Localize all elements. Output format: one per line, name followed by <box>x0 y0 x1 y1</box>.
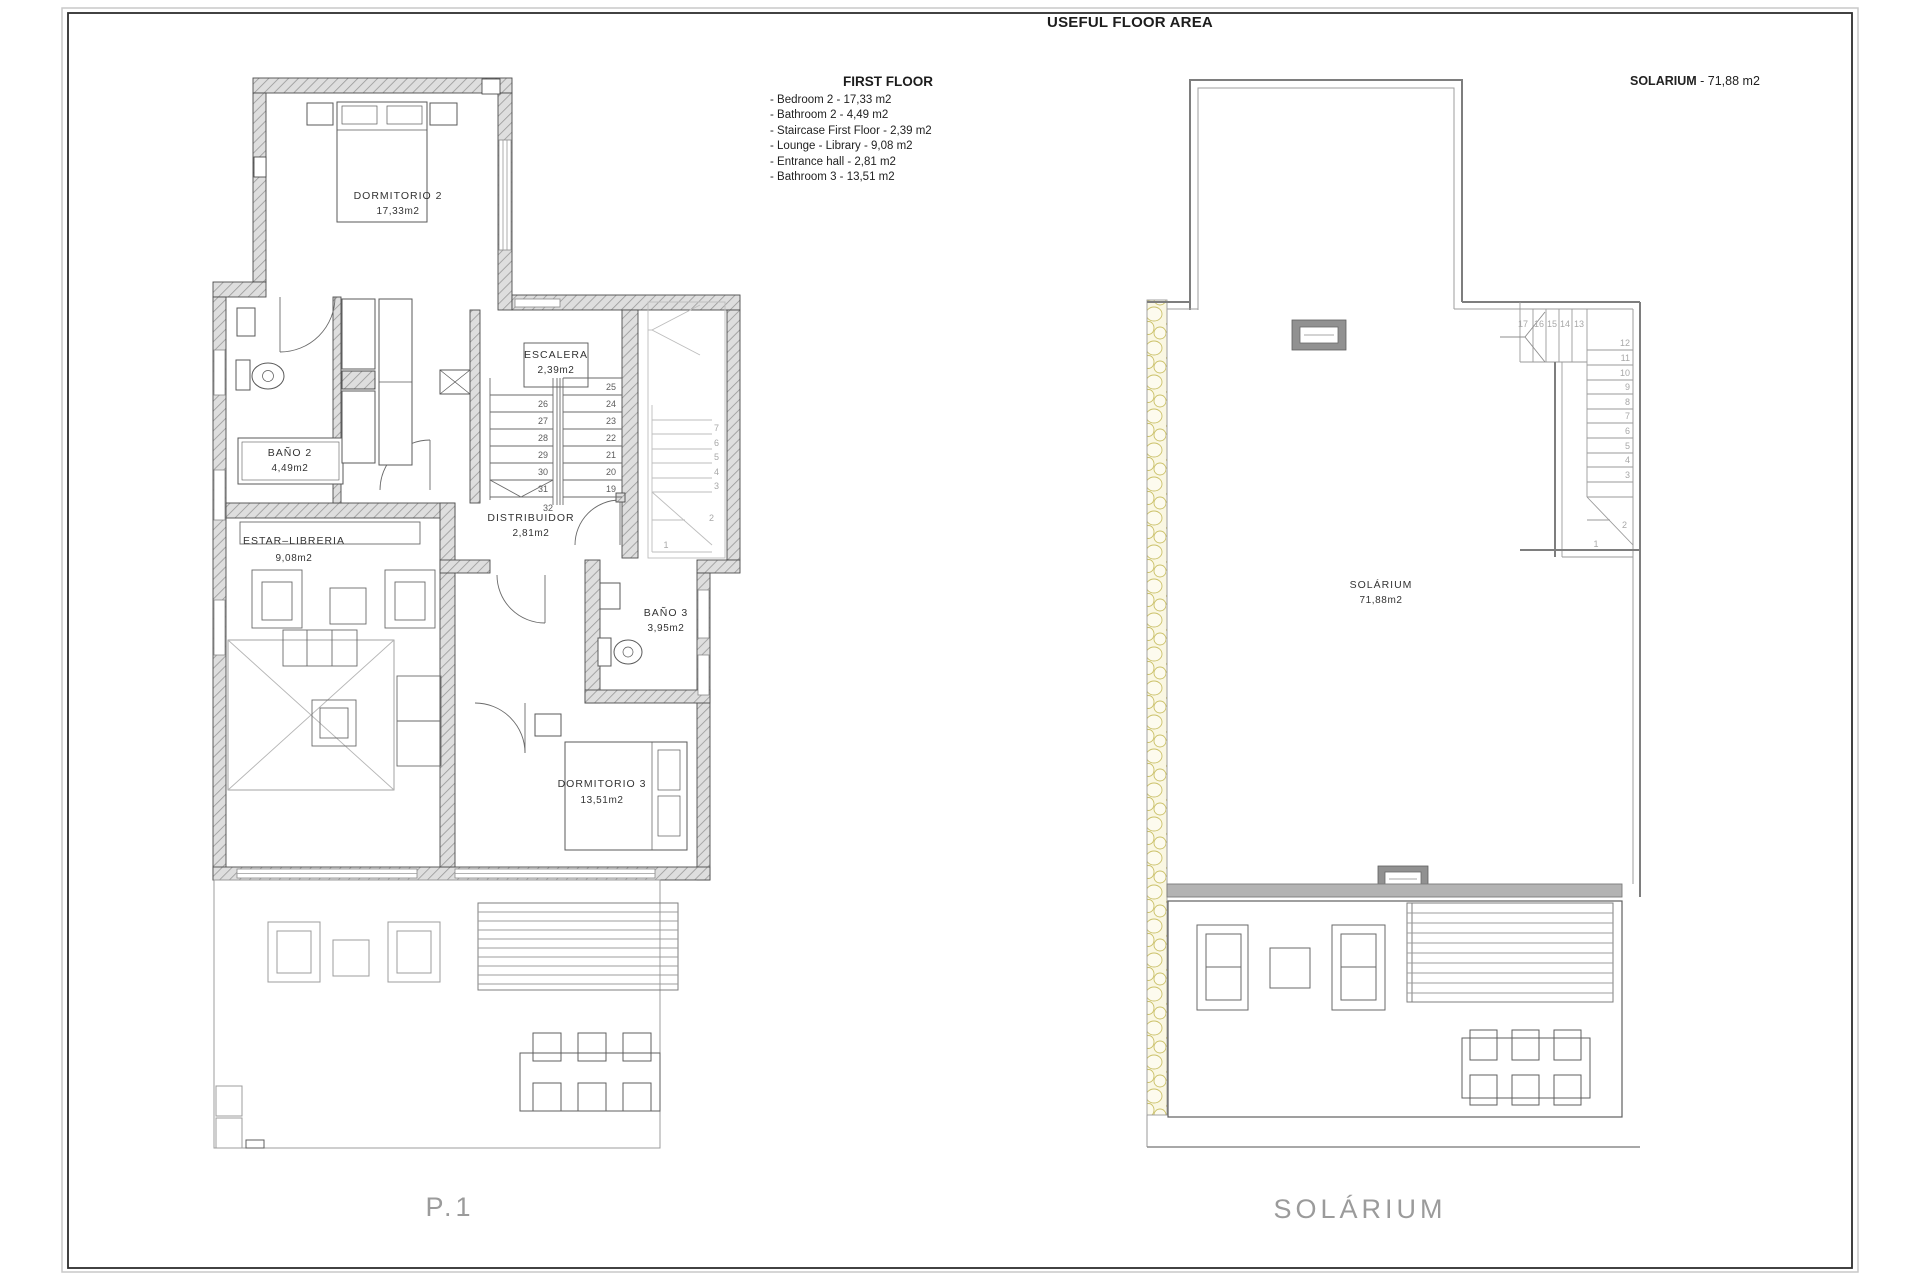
room-area-dormitorio3: 13,51m2 <box>580 795 623 806</box>
roof-vents <box>1292 320 1428 894</box>
room-area-estar: 9,08m2 <box>276 553 313 564</box>
stair-number: 26 <box>538 399 548 409</box>
room-label-bano3: BAÑO 3 <box>644 606 689 619</box>
caption-first-floor: P.1 <box>350 1192 550 1223</box>
stair-number: 29 <box>538 450 548 460</box>
stair-number: 11 <box>1621 353 1630 363</box>
stair-number: 19 <box>606 484 616 494</box>
terrace-first-floor <box>214 880 678 1148</box>
stair-number: 3 <box>1625 470 1630 480</box>
stair-number: 28 <box>538 433 548 443</box>
stair-number: 15 <box>1547 319 1557 329</box>
room-area-distribuidor: 2,81m2 <box>513 528 550 539</box>
solarium-stair-numbers: 17 16 15 14 13 12 11 10 9 8 7 6 5 4 3 2 … <box>1518 319 1630 549</box>
stair-number: 10 <box>1620 368 1630 378</box>
stair-number: 24 <box>606 399 616 409</box>
bedroom2-furniture <box>307 102 457 222</box>
room-label-estar: ESTAR–LIBRERIA <box>243 535 345 547</box>
stair-number: 20 <box>606 467 616 477</box>
stair-number: 25 <box>606 382 616 392</box>
ghost-stair-number: 2 <box>709 513 714 523</box>
room-label-escalera: ESCALERA <box>524 349 588 361</box>
stair-number: 1 <box>1593 539 1598 549</box>
room-area-dormitorio2: 17,33m2 <box>376 206 419 217</box>
caption-solarium: SOLÁRIUM <box>1230 1194 1490 1225</box>
stair-number: 13 <box>1574 319 1584 329</box>
stair-number: 21 <box>606 450 616 460</box>
stair-number: 32 <box>543 503 553 513</box>
room-label-dormitorio2: DORMITORIO 2 <box>354 190 443 202</box>
room-area-solarium: 71,88m2 <box>1359 595 1402 606</box>
ghost-stair-number: 1 <box>663 540 668 550</box>
solarium-terrace <box>1147 884 1640 1147</box>
stair-number: 14 <box>1560 319 1570 329</box>
stair-number: 4 <box>1625 455 1630 465</box>
plan-solarium: 17 16 15 14 13 12 11 10 9 8 7 6 5 4 3 2 … <box>1147 80 1640 1147</box>
room-area-bano3: 3,95m2 <box>648 623 685 634</box>
stair-number: 30 <box>538 467 548 477</box>
stone-wall <box>1147 300 1167 1115</box>
stair-number: 27 <box>538 416 548 426</box>
plan-first-floor: DORMITORIO 2 17,33m2 BAÑO 2 4,49m2 ESCAL… <box>213 78 740 1148</box>
room-area-escalera: 2,39m2 <box>538 365 575 376</box>
room-area-bano2: 4,49m2 <box>272 463 309 474</box>
stair-number: 2 <box>1622 520 1627 530</box>
stair-number: 5 <box>1625 441 1630 451</box>
stair-number: 12 <box>1620 338 1630 348</box>
room-label-solarium: SOLÁRIUM <box>1350 578 1413 591</box>
ghost-stair-number: 5 <box>714 452 719 462</box>
wardrobes <box>342 299 470 465</box>
ghost-stair-number: 6 <box>714 438 719 448</box>
stair-number: 7 <box>1625 411 1630 421</box>
floorplan-canvas: DORMITORIO 2 17,33m2 BAÑO 2 4,49m2 ESCAL… <box>0 0 1920 1280</box>
bathroom3-fixtures <box>598 583 642 666</box>
drawing-sheet: USEFUL FLOOR AREA FIRST FLOOR - Bedroom … <box>0 0 1920 1280</box>
stair-number: 9 <box>1625 382 1630 392</box>
stair-number: 8 <box>1625 397 1630 407</box>
stair-number: 23 <box>606 416 616 426</box>
stair-number: 17 <box>1518 319 1528 329</box>
ghost-stair-number: 7 <box>714 423 719 433</box>
stair-number: 31 <box>538 484 548 494</box>
stair-number: 22 <box>606 433 616 443</box>
stair-number: 16 <box>1534 319 1544 329</box>
ghost-stair-number: 4 <box>714 467 719 477</box>
parapet-walls <box>1147 80 1640 897</box>
living-room-furniture <box>228 522 441 790</box>
room-label-distribuidor: DISTRIBUIDOR <box>487 512 574 524</box>
ghost-stair-number: 3 <box>714 481 719 491</box>
stair-number: 6 <box>1625 426 1630 436</box>
room-label-dormitorio3: DORMITORIO 3 <box>558 778 647 790</box>
room-label-bano2: BAÑO 2 <box>268 446 313 459</box>
